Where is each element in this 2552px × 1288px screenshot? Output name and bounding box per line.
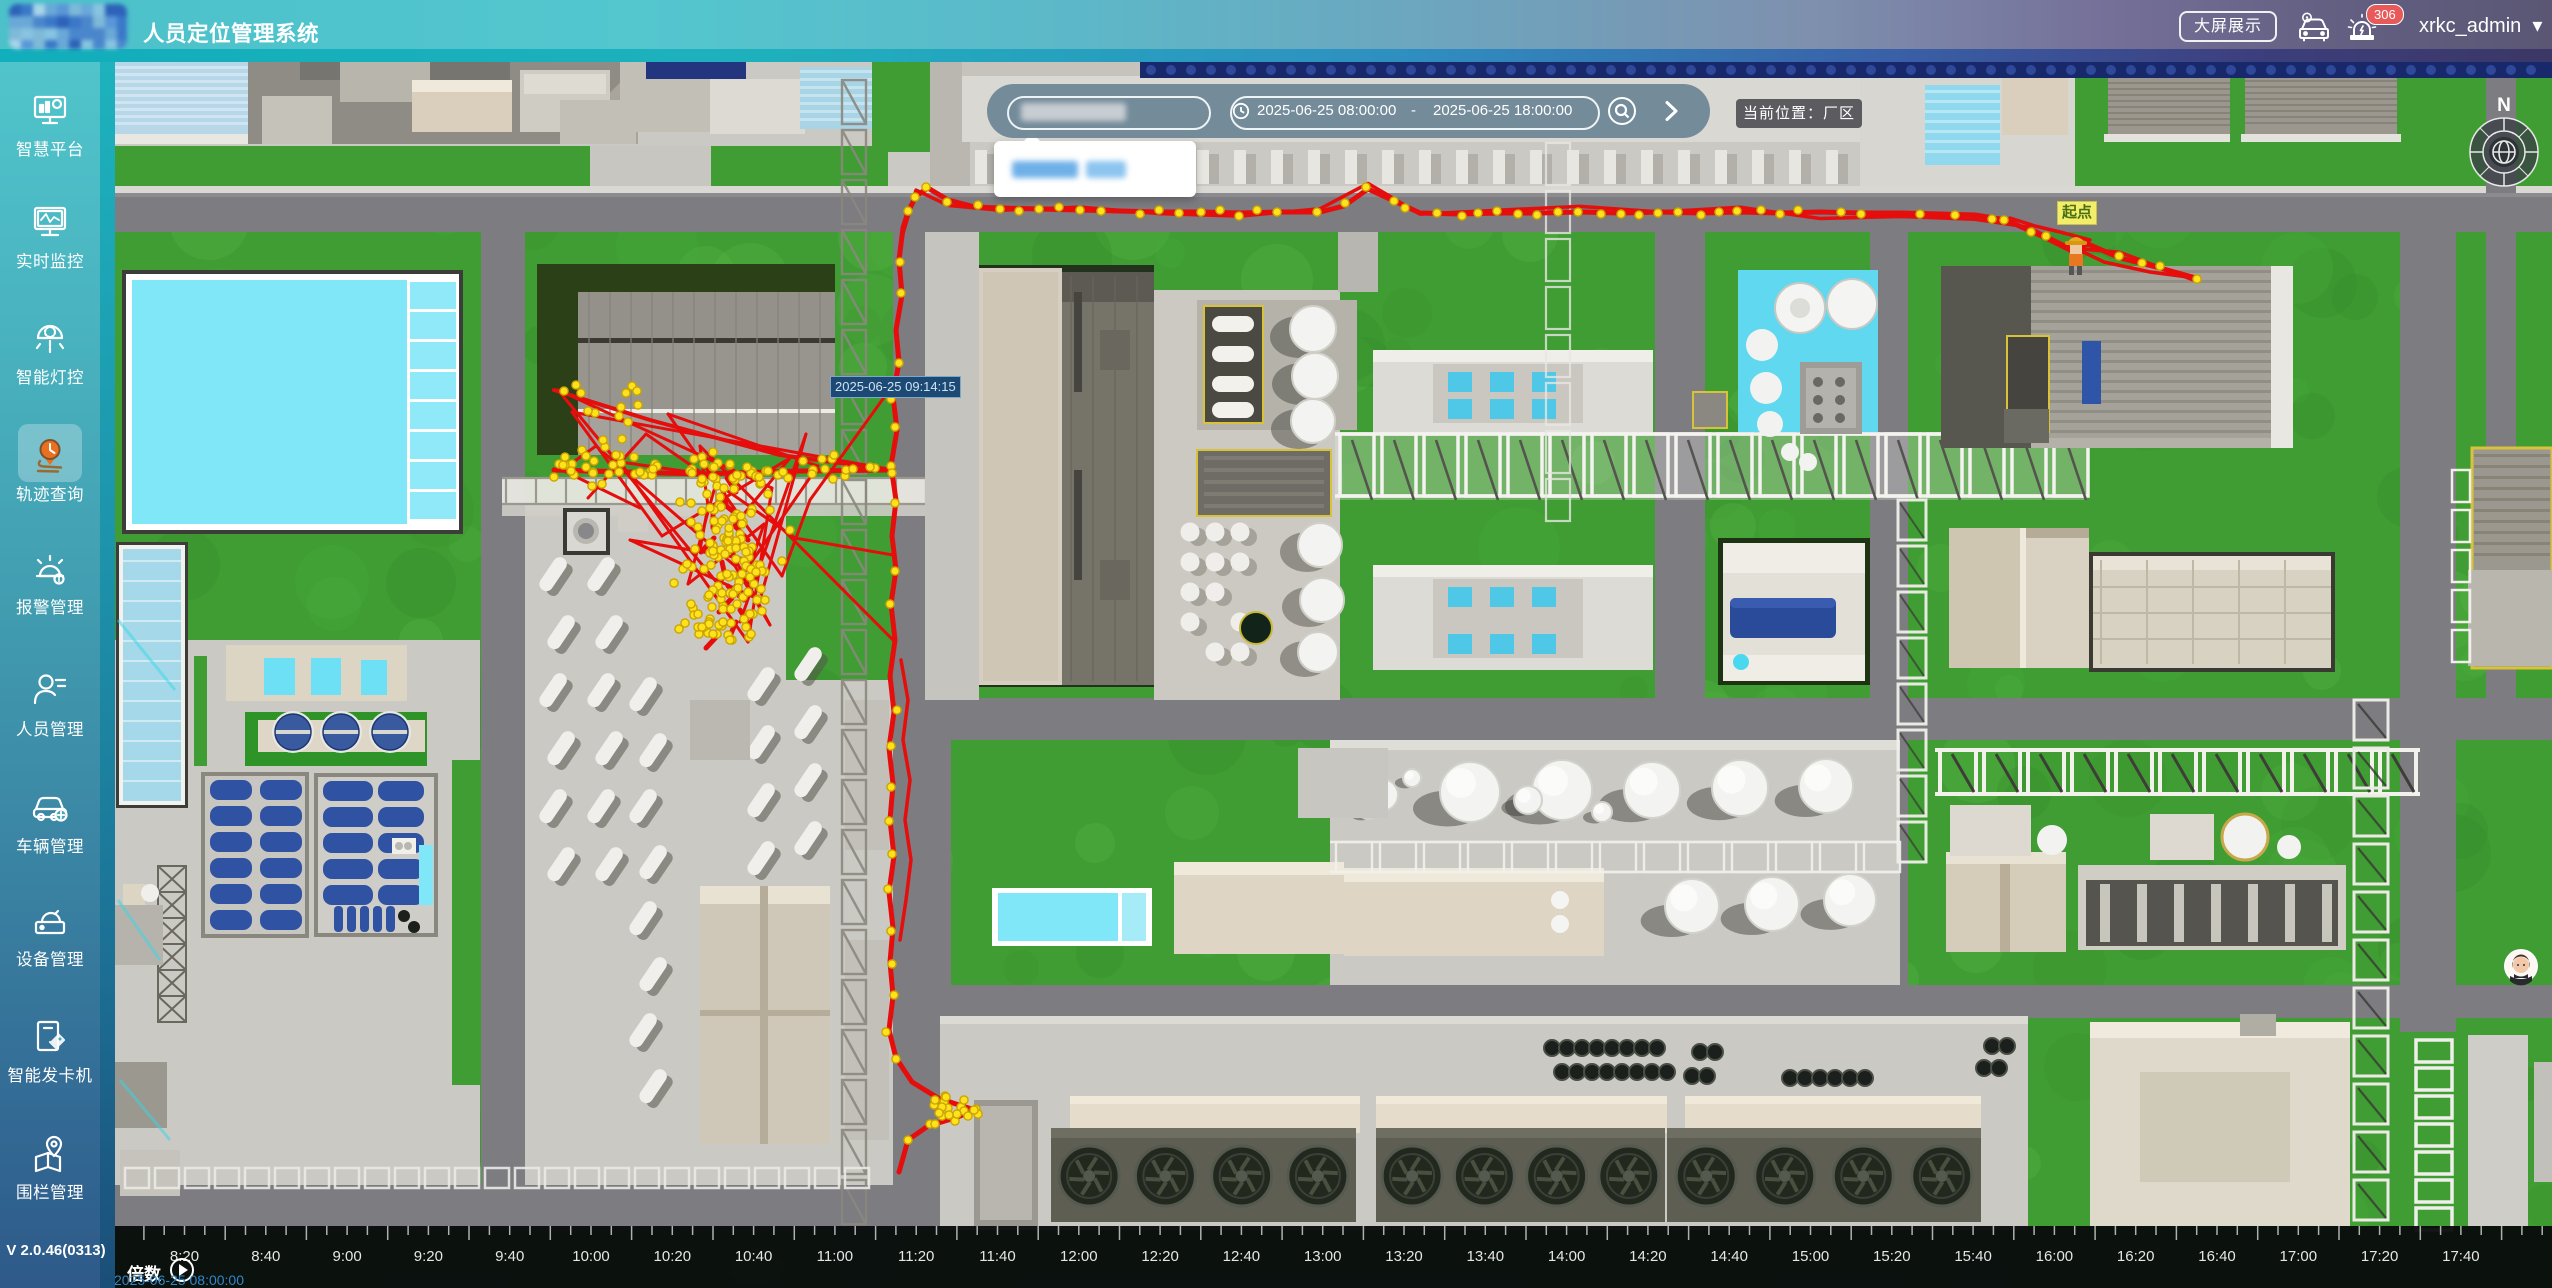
svg-text:N: N [2497, 95, 2511, 116]
